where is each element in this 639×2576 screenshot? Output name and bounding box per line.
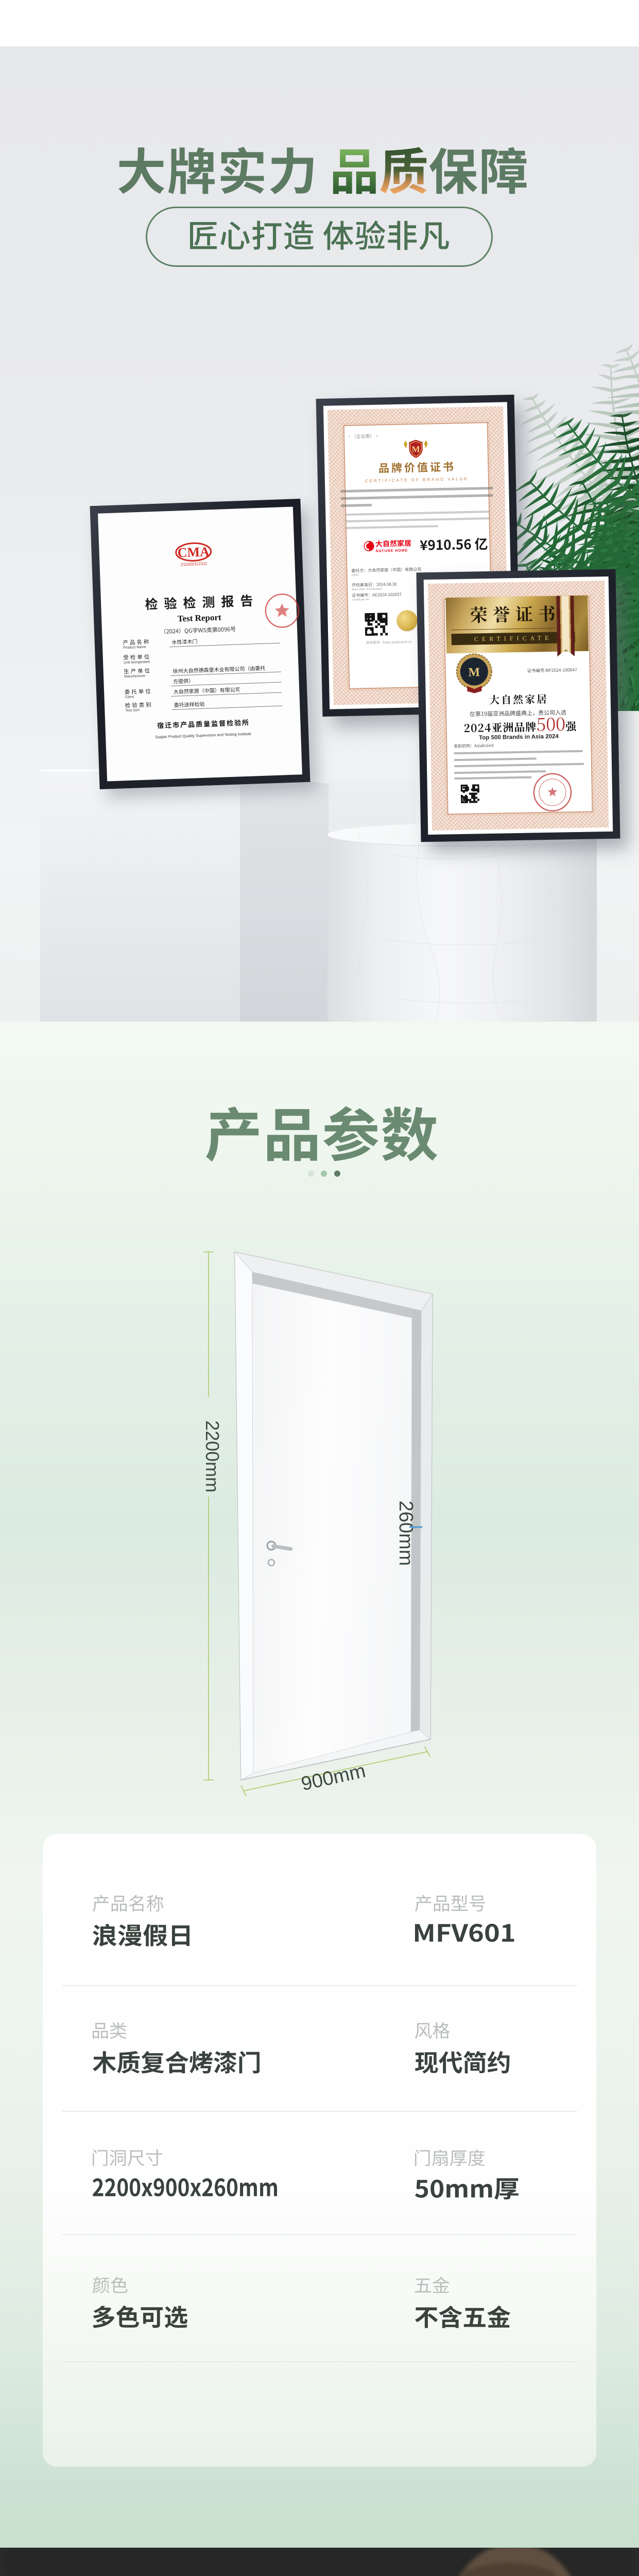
- svg-text:2200mm: 2200mm: [202, 1420, 223, 1493]
- svg-text:M: M: [468, 666, 480, 679]
- svg-text:M: M: [411, 444, 420, 454]
- svg-text:260mm: 260mm: [395, 1501, 417, 1566]
- svg-text:211020112311: 211020112311: [181, 561, 208, 567]
- svg-text:CMA: CMA: [177, 544, 210, 560]
